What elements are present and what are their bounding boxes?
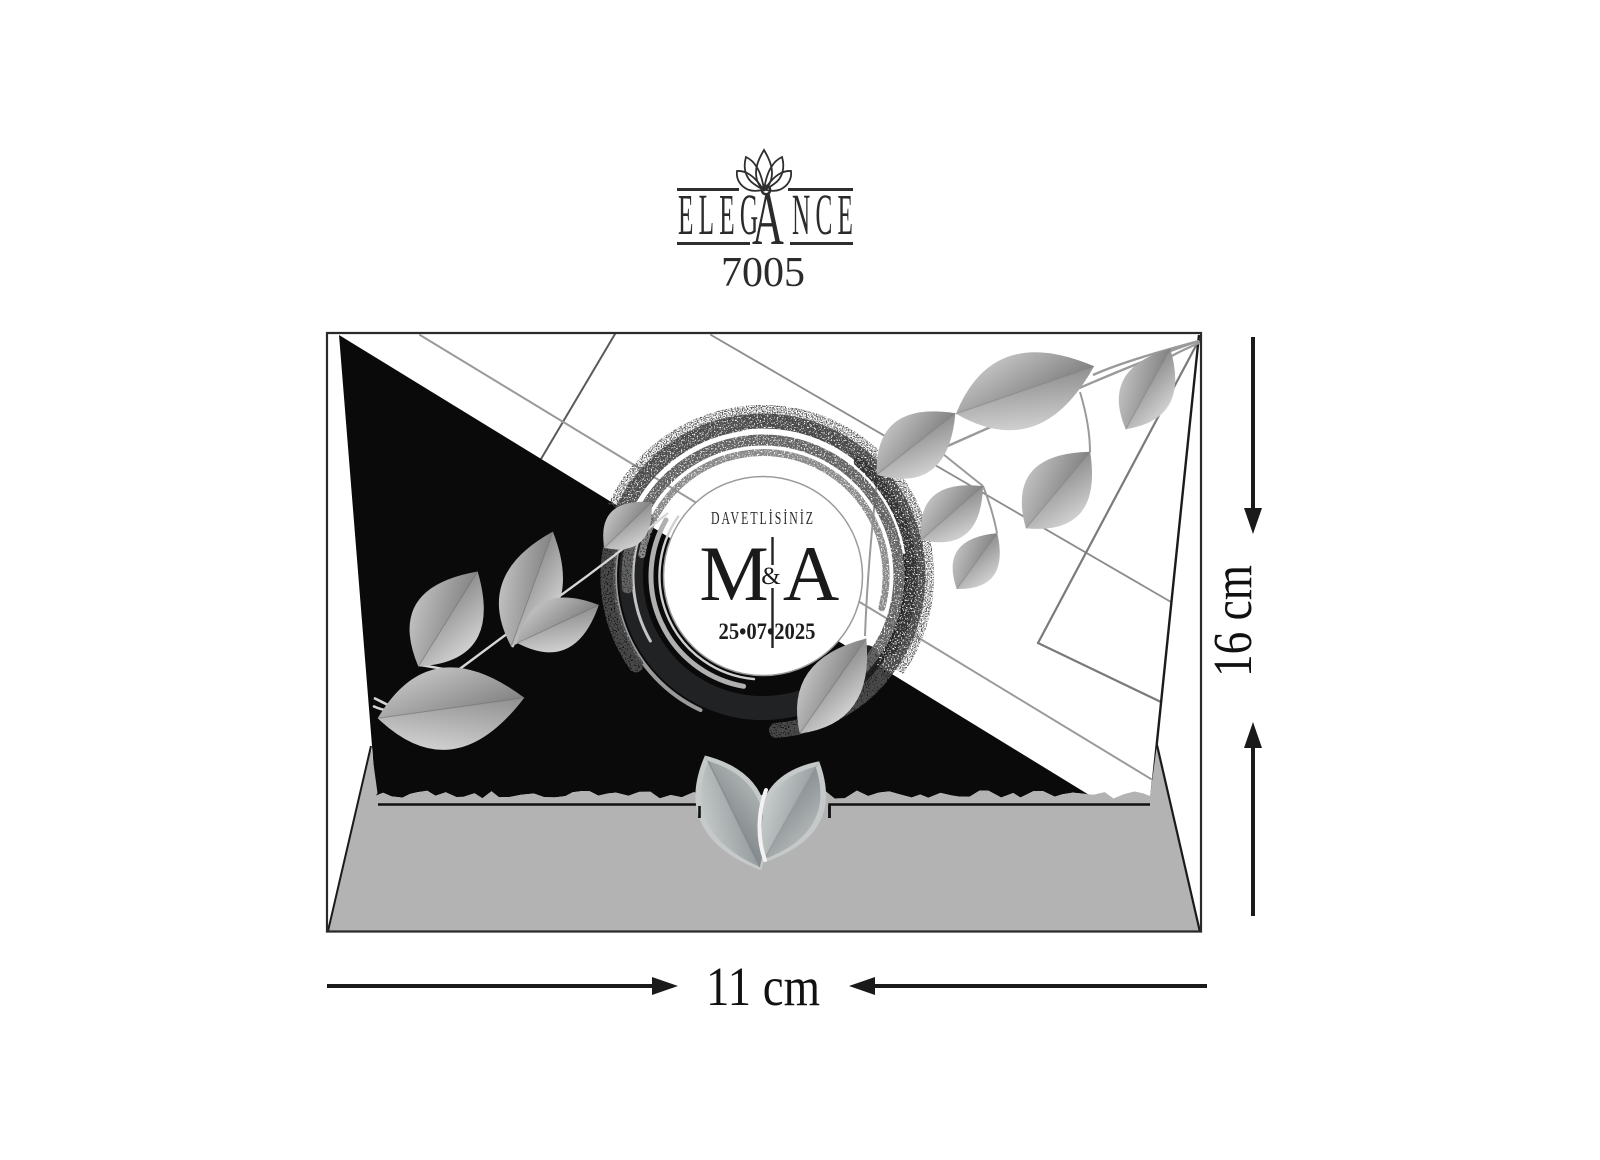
svg-text:A: A	[783, 530, 839, 617]
svg-text:M: M	[699, 530, 768, 617]
svg-text:DAVETLİSİNİZ: DAVETLİSİNİZ	[711, 508, 815, 528]
svg-text:ELEG: ELEG	[678, 182, 763, 247]
svg-text:A: A	[752, 178, 784, 261]
svg-text:11 cm: 11 cm	[706, 956, 820, 1017]
svg-text:7005: 7005	[721, 250, 805, 296]
svg-text:NCE: NCE	[792, 182, 858, 247]
svg-text:25•07•2025: 25•07•2025	[719, 619, 816, 644]
svg-text:16 cm: 16 cm	[1202, 565, 1263, 677]
svg-text:&: &	[761, 563, 780, 590]
